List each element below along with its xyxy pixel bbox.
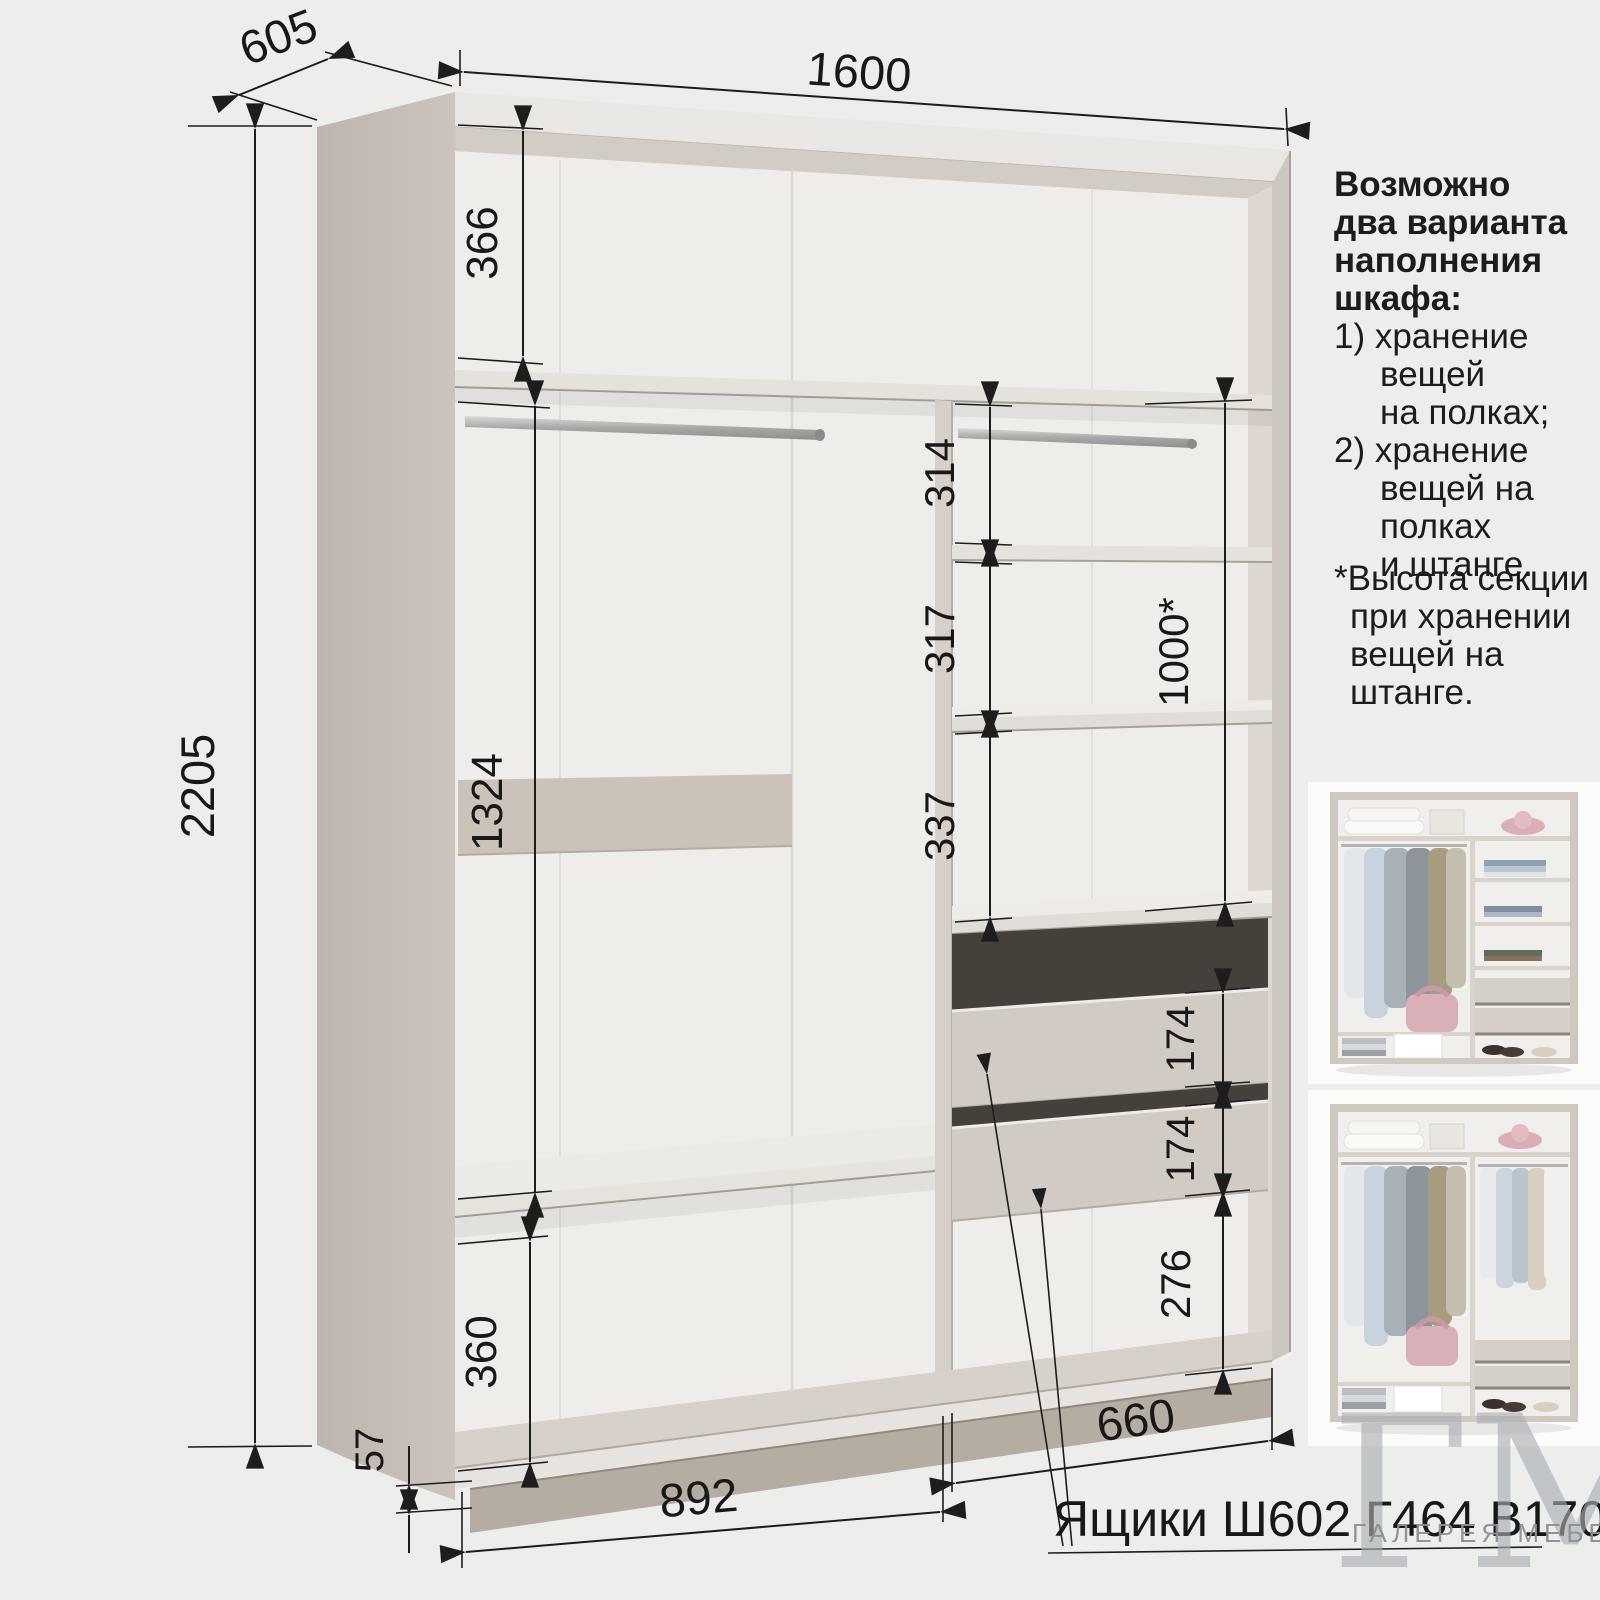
- note-item1-line: на полках;: [1334, 394, 1600, 432]
- dim-depth-label: 605: [232, 0, 324, 75]
- note-heading-line: шкафа:: [1334, 280, 1600, 318]
- dim-right-width-label: 660: [1093, 1388, 1178, 1451]
- note-heading-line: Возможно: [1334, 166, 1600, 204]
- dim-right-2-label: 317: [916, 604, 963, 674]
- note-heading-line: два варианта: [1334, 204, 1600, 242]
- dim-drawer-lower-label: 174: [1159, 1116, 1203, 1183]
- dim-right-rod-label: 1000*: [1150, 597, 1197, 707]
- note-heading-line: наполнения: [1334, 242, 1600, 280]
- dim-right-3-label: 337: [916, 791, 963, 861]
- footnote-line: штанге.: [1334, 674, 1600, 712]
- brand-caption: ГАЛЕРЕЯ МЕБЕЛИ: [1352, 1518, 1600, 1549]
- note-item2-line: вещей на: [1334, 470, 1600, 508]
- filling-options-note: Возможно два варианта наполнения шкафа: …: [1334, 166, 1600, 584]
- footnote-line: *Высота секции: [1334, 560, 1600, 598]
- dim-left-bottom-label: 360: [457, 1315, 506, 1388]
- note-item1-line: 1) хранение: [1334, 318, 1600, 356]
- dim-left-hanging-label: 1324: [463, 753, 512, 851]
- dim-right-1-label: 314: [916, 438, 963, 508]
- rod-height-footnote: *Высота секции при хранении вещей на шта…: [1334, 560, 1600, 712]
- cabinet-drawers: [952, 918, 1268, 1221]
- dim-left-top-label: 366: [458, 206, 507, 279]
- note-item1-line: вещей: [1334, 356, 1600, 394]
- dim-height-total: 2205: [171, 126, 312, 1447]
- dim-right-bottom-label: 276: [1152, 1249, 1199, 1319]
- dim-width-total-label: 1600: [805, 41, 913, 101]
- footnote-line: при хранении: [1334, 598, 1600, 636]
- dim-drawer-upper-label: 174: [1159, 1006, 1203, 1073]
- wardrobe-dimension-diagram: 1600 605 2205 366 1324 360 57: [0, 0, 1600, 1600]
- thumbnail-variant-shelves: [1308, 782, 1600, 1084]
- note-item2-line: 2) хранение: [1334, 432, 1600, 470]
- note-item2-line: полках: [1334, 508, 1600, 546]
- dim-height-total-label: 2205: [171, 734, 224, 839]
- dim-plinth-label: 57: [348, 1428, 392, 1473]
- footnote-line: вещей на: [1334, 636, 1600, 674]
- dim-left-width-label: 892: [657, 1468, 740, 1528]
- brand-monogram: ГМ: [1330, 1388, 1600, 1600]
